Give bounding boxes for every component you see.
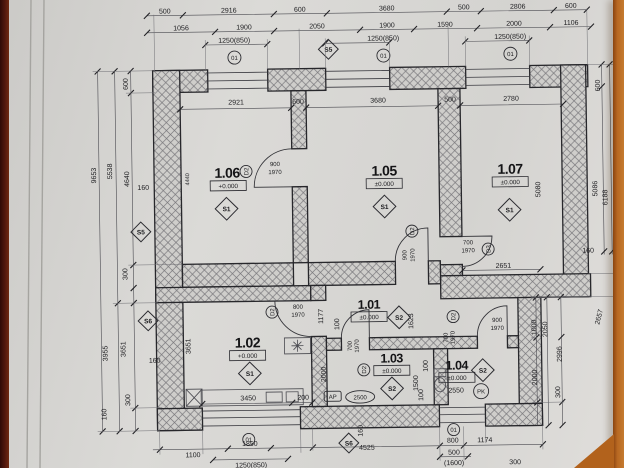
svg-text:600: 600 xyxy=(595,80,602,92)
svg-text:D3: D3 xyxy=(486,245,492,253)
svg-text:4440: 4440 xyxy=(185,173,191,185)
svg-text:1106: 1106 xyxy=(563,20,578,27)
svg-text:2651: 2651 xyxy=(496,263,512,270)
outer-walls xyxy=(153,65,593,431)
room-103-equipment: AP 2500 xyxy=(324,390,375,403)
svg-text:3680: 3680 xyxy=(379,5,395,12)
svg-text:D2: D2 xyxy=(244,167,250,175)
svg-text:1850: 1850 xyxy=(242,441,258,448)
room-label-107: 1.07 ±0.000 S1 xyxy=(492,161,529,222)
svg-text:4525: 4525 xyxy=(359,445,375,452)
door-label-107: D3 700 1970 xyxy=(461,240,494,255)
svg-text:3651: 3651 xyxy=(120,341,127,357)
svg-text:PK: PK xyxy=(477,389,485,395)
svg-text:(1600): (1600) xyxy=(444,460,464,467)
svg-text:700: 700 xyxy=(444,332,450,343)
svg-text:S2: S2 xyxy=(388,386,396,393)
room-label-101: 1.01 ±0.000 S2 xyxy=(351,297,411,329)
desk-surface-corner xyxy=(574,434,614,468)
svg-text:+0.000: +0.000 xyxy=(238,353,258,360)
svg-text:500: 500 xyxy=(448,449,460,456)
svg-text:600: 600 xyxy=(294,7,306,14)
svg-text:800: 800 xyxy=(447,438,459,445)
floor-plan-photo: 500 2916 600 3680 500 2806 600 1056 1900… xyxy=(0,0,624,468)
svg-text:700: 700 xyxy=(348,340,354,351)
svg-text:2916: 2916 xyxy=(221,8,237,15)
svg-text:100: 100 xyxy=(418,389,425,401)
svg-text:500: 500 xyxy=(444,97,456,104)
svg-text:D2: D2 xyxy=(451,312,457,320)
door-label-102: D2 800 1970 xyxy=(266,305,306,320)
stove-symbol xyxy=(284,338,310,354)
desk-surface-right xyxy=(613,0,624,468)
room-label-102: 1.02 +0.000 S1 xyxy=(229,334,266,385)
svg-text:3955: 3955 xyxy=(102,345,109,361)
svg-text:500: 500 xyxy=(159,8,171,15)
svg-text:600: 600 xyxy=(123,78,130,90)
svg-text:1590: 1590 xyxy=(437,22,453,29)
svg-text:300: 300 xyxy=(122,268,129,280)
svg-text:2550: 2550 xyxy=(448,387,464,394)
svg-text:1970: 1970 xyxy=(461,248,475,254)
left-dimension-chain: 600 4640 5538 9653 160 300 3955 3651 300… xyxy=(90,68,162,435)
svg-text:5538: 5538 xyxy=(107,163,114,179)
svg-text:160: 160 xyxy=(137,185,149,192)
top-dimension-chain: 500 2916 600 3680 500 2806 600 1056 1900… xyxy=(144,3,595,66)
svg-text:3680: 3680 xyxy=(370,97,386,104)
svg-text:1.07: 1.07 xyxy=(497,161,523,177)
svg-text:01: 01 xyxy=(450,428,457,434)
svg-text:900: 900 xyxy=(270,162,281,168)
svg-text:1250(850): 1250(850) xyxy=(218,37,250,44)
svg-text:D2: D2 xyxy=(410,227,416,235)
svg-text:2996: 2996 xyxy=(557,346,564,362)
door-label-105: D2 900 1970 xyxy=(402,225,418,262)
svg-text:800: 800 xyxy=(293,305,304,311)
svg-text:160: 160 xyxy=(582,248,594,255)
bottom-dimension-chain: 1100 01 1850 1250(850) S6 4525 160 01 80… xyxy=(153,422,547,468)
svg-text:2500: 2500 xyxy=(353,395,367,401)
svg-text:1970: 1970 xyxy=(410,248,416,262)
svg-text:2780: 2780 xyxy=(503,96,519,103)
svg-text:S6: S6 xyxy=(144,318,152,325)
svg-text:1000: 1000 xyxy=(531,319,538,335)
svg-text:S2: S2 xyxy=(479,368,487,375)
svg-text:S6: S6 xyxy=(345,440,353,447)
svg-text:D2: D2 xyxy=(270,308,276,316)
svg-text:+0.000: +0.000 xyxy=(218,183,238,190)
svg-text:±0.000: ±0.000 xyxy=(382,368,402,375)
svg-text:1056: 1056 xyxy=(173,25,189,32)
svg-text:1970: 1970 xyxy=(268,170,282,176)
svg-text:600: 600 xyxy=(292,99,304,106)
svg-text:AP: AP xyxy=(329,395,337,401)
svg-text:2000: 2000 xyxy=(321,366,328,382)
svg-text:1970: 1970 xyxy=(491,326,505,332)
svg-text:2050: 2050 xyxy=(309,23,325,30)
svg-text:1.01: 1.01 xyxy=(358,298,381,312)
svg-text:5086: 5086 xyxy=(592,181,599,197)
room-label-103: 1.03 ±0.000 S2 xyxy=(374,351,411,400)
door-label-103: D2 700 1970 xyxy=(348,338,370,376)
floor-plan-drawing: 500 2916 600 3680 500 2806 600 1056 1900… xyxy=(0,0,624,468)
svg-text:1.04: 1.04 xyxy=(445,358,468,372)
svg-text:01: 01 xyxy=(380,54,387,60)
svg-text:3450: 3450 xyxy=(240,395,256,402)
svg-text:1900: 1900 xyxy=(236,24,252,31)
svg-text:100: 100 xyxy=(423,360,430,372)
svg-text:300: 300 xyxy=(555,386,562,398)
paper-edge-lines xyxy=(27,0,44,468)
svg-text:±0.000: ±0.000 xyxy=(375,181,395,188)
svg-text:1.06: 1.06 xyxy=(214,165,240,181)
svg-text:2000: 2000 xyxy=(532,369,539,385)
svg-text:1.03: 1.03 xyxy=(380,351,403,365)
svg-text:1500: 1500 xyxy=(413,375,420,391)
svg-text:±0.000: ±0.000 xyxy=(447,375,467,382)
svg-text:1250(850): 1250(850) xyxy=(494,34,526,41)
room-label-105: 1.05 ±0.000 S1 xyxy=(366,162,403,218)
svg-text:1970: 1970 xyxy=(451,330,457,344)
svg-text:300: 300 xyxy=(125,394,132,406)
svg-text:1174: 1174 xyxy=(477,437,492,444)
svg-text:S2: S2 xyxy=(395,315,403,322)
svg-text:500: 500 xyxy=(458,4,470,11)
svg-text:±0.000: ±0.000 xyxy=(501,179,521,186)
svg-text:600: 600 xyxy=(565,3,577,10)
svg-text:700: 700 xyxy=(463,240,474,246)
svg-text:6188: 6188 xyxy=(602,189,609,205)
svg-text:100: 100 xyxy=(334,318,341,330)
svg-text:1900: 1900 xyxy=(379,22,395,29)
svg-text:S1: S1 xyxy=(223,206,231,213)
svg-text:1250(850): 1250(850) xyxy=(235,462,267,468)
svg-text:±0.000: ±0.000 xyxy=(359,314,379,321)
desk-surface-left xyxy=(0,0,9,468)
svg-text:1250(850): 1250(850) xyxy=(367,35,399,42)
svg-text:S1: S1 xyxy=(246,371,254,378)
svg-text:2806: 2806 xyxy=(510,4,526,11)
svg-text:2657: 2657 xyxy=(594,309,605,326)
svg-text:900: 900 xyxy=(492,318,503,324)
svg-text:S1: S1 xyxy=(506,207,514,214)
svg-text:S1: S1 xyxy=(381,204,389,211)
svg-text:1970: 1970 xyxy=(355,339,361,353)
svg-text:3651: 3651 xyxy=(185,338,192,354)
svg-text:2050: 2050 xyxy=(542,321,549,337)
svg-text:01: 01 xyxy=(507,52,514,58)
svg-text:2921: 2921 xyxy=(228,99,244,106)
svg-text:1177: 1177 xyxy=(318,309,325,324)
svg-text:300: 300 xyxy=(509,459,521,466)
svg-text:S5: S5 xyxy=(137,229,145,236)
svg-text:200: 200 xyxy=(297,395,309,402)
svg-text:1.02: 1.02 xyxy=(235,334,261,350)
svg-text:1.05: 1.05 xyxy=(371,162,397,178)
svg-text:01: 01 xyxy=(231,56,238,62)
room-label-106: 1.06 +0.000 S1 xyxy=(210,164,247,220)
svg-text:900: 900 xyxy=(402,250,408,261)
svg-text:9653: 9653 xyxy=(91,168,98,184)
svg-text:160: 160 xyxy=(101,408,108,420)
svg-text:1100: 1100 xyxy=(185,452,200,459)
svg-text:160: 160 xyxy=(149,358,161,365)
svg-text:160: 160 xyxy=(358,425,365,437)
svg-text:2000: 2000 xyxy=(506,21,522,28)
svg-text:4640: 4640 xyxy=(124,171,131,187)
svg-text:1970: 1970 xyxy=(291,313,305,319)
svg-text:D2: D2 xyxy=(362,365,368,373)
svg-text:5080: 5080 xyxy=(535,181,542,197)
